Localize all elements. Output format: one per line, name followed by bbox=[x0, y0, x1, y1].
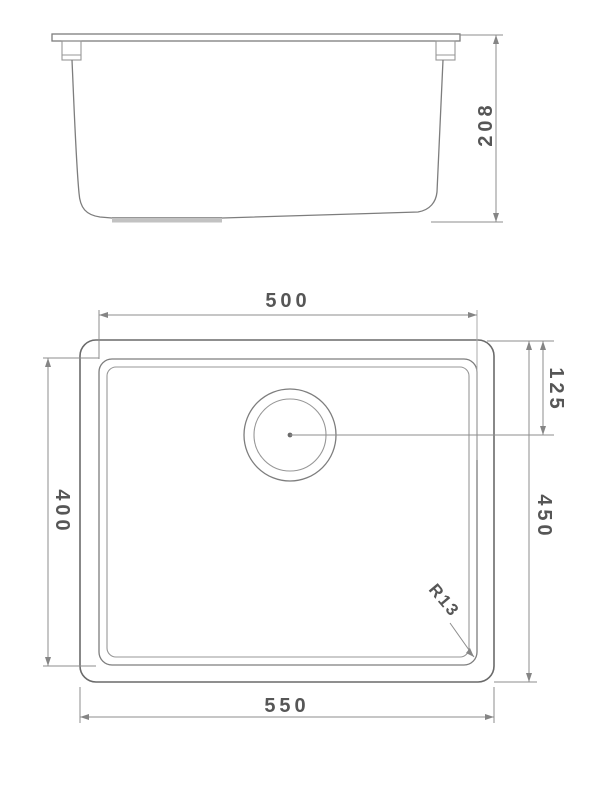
arrowhead-right-icon bbox=[468, 312, 477, 318]
plan-bowl-inner-edge bbox=[107, 367, 469, 657]
arrowhead-down-icon bbox=[493, 213, 499, 222]
dim-450-label: 450 bbox=[533, 494, 555, 539]
plan-bowl-edge bbox=[99, 359, 477, 665]
dim-125-label: 125 bbox=[545, 367, 567, 412]
side-view-left-clip bbox=[62, 41, 81, 60]
plan-view: 500 125 400 bbox=[43, 290, 567, 723]
sink-technical-drawing: 208 500 bbox=[0, 0, 606, 800]
arrowhead-left-icon bbox=[99, 312, 108, 318]
side-view-right-clip bbox=[436, 41, 455, 60]
plan-outer-rim bbox=[80, 340, 494, 682]
side-view: 208 bbox=[52, 34, 503, 222]
radius-label: R13 bbox=[425, 580, 463, 621]
arrowhead-left-icon bbox=[80, 714, 89, 720]
arrowhead-up-icon bbox=[526, 341, 532, 350]
dim-outer-width: 550 bbox=[80, 687, 494, 723]
side-view-rim bbox=[52, 34, 460, 41]
arrowhead-diagonal-icon bbox=[466, 648, 474, 657]
arrowhead-up-icon bbox=[45, 358, 51, 367]
arrowhead-up-icon bbox=[540, 341, 546, 350]
technical-drawing-page: 208 500 bbox=[0, 0, 606, 800]
side-view-body-outline bbox=[72, 60, 443, 218]
dim-bowl-depth: 400 bbox=[43, 358, 99, 666]
arrowhead-down-icon bbox=[45, 657, 51, 666]
dim-side-height: 208 bbox=[431, 35, 503, 222]
dim-500-label: 500 bbox=[265, 290, 310, 312]
dim-400-label: 400 bbox=[51, 489, 73, 534]
dim-208-label: 208 bbox=[475, 101, 497, 146]
dim-550-label: 550 bbox=[264, 695, 309, 717]
arrowhead-down-icon bbox=[540, 426, 546, 435]
radius-callout: R13 bbox=[425, 580, 474, 657]
arrowhead-up-icon bbox=[493, 35, 499, 44]
arrowhead-down-icon bbox=[526, 673, 532, 682]
arrowhead-right-icon bbox=[485, 714, 494, 720]
dim-drain-offset: 125 bbox=[290, 341, 567, 435]
